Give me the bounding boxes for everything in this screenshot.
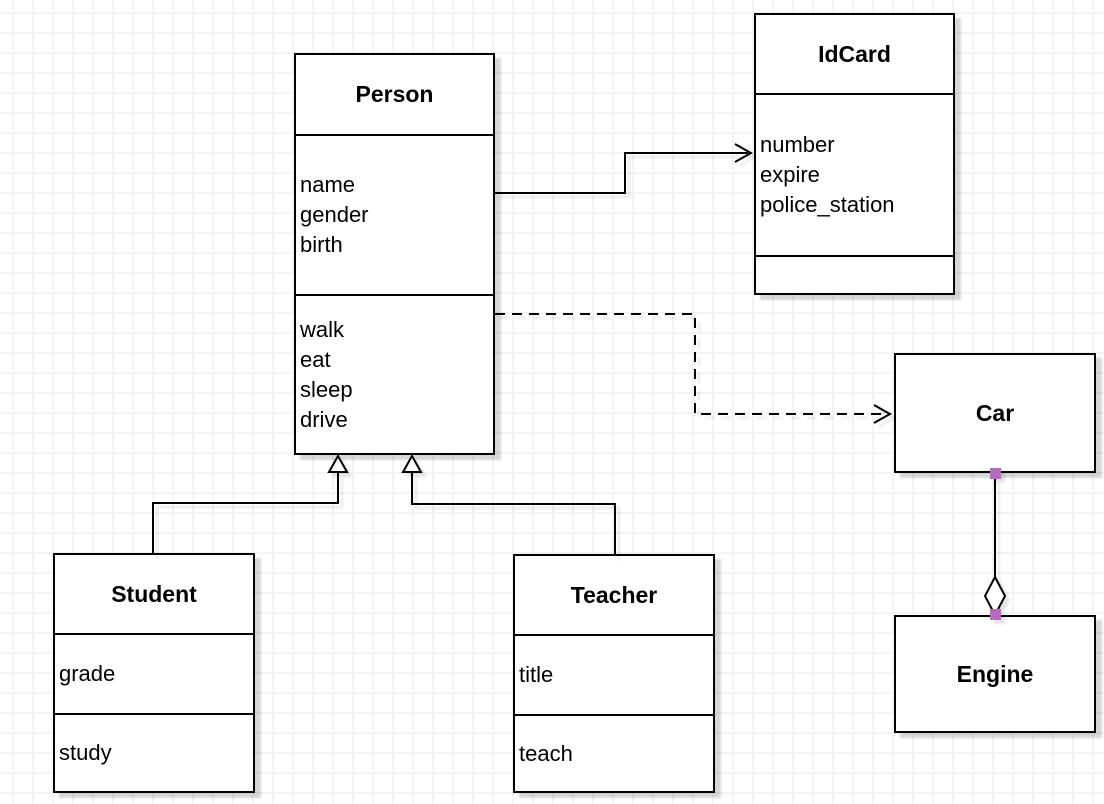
attributes-compartment: grade [55, 635, 253, 715]
association-person-idcard[interactable] [495, 153, 748, 193]
attribute: birth [300, 230, 493, 260]
methods-compartment: teach [515, 716, 713, 791]
attribute: number [760, 130, 953, 160]
class-student[interactable]: Student grade study [53, 553, 255, 793]
open-arrowhead-icon [735, 144, 751, 162]
hollow-triangle-icon [329, 456, 347, 472]
open-arrowhead-icon [874, 405, 890, 423]
methods-compartment: walk eat sleep drive [296, 296, 493, 453]
attributes-compartment: number expire police_station [756, 95, 953, 257]
attribute: grade [59, 659, 253, 689]
method: sleep [300, 375, 493, 405]
methods-compartment: study [55, 715, 253, 791]
method: study [59, 738, 253, 768]
class-title: Engine [896, 617, 1094, 731]
hollow-diamond-icon [985, 577, 1005, 615]
method: teach [519, 739, 713, 769]
hollow-triangle-icon [403, 456, 421, 472]
attribute: title [519, 660, 713, 690]
method: drive [300, 405, 493, 435]
class-engine[interactable]: Engine [894, 615, 1096, 733]
attributes-compartment: name gender birth [296, 136, 493, 296]
method: walk [300, 315, 493, 345]
diagram-canvas: Person name gender birth walk eat sleep … [0, 0, 1104, 804]
class-idcard[interactable]: IdCard number expire police_station [754, 13, 955, 295]
generalization-student-person[interactable] [153, 472, 338, 554]
class-person[interactable]: Person name gender birth walk eat sleep … [294, 53, 495, 455]
class-teacher[interactable]: Teacher title teach [513, 554, 715, 793]
attribute: gender [300, 200, 493, 230]
attributes-compartment: title [515, 636, 713, 716]
attribute: name [300, 170, 493, 200]
method: eat [300, 345, 493, 375]
generalization-teacher-person[interactable] [412, 472, 615, 556]
class-car[interactable]: Car [894, 353, 1096, 473]
attribute: expire [760, 160, 953, 190]
class-title: Student [55, 555, 253, 635]
attribute: police_station [760, 190, 953, 220]
methods-compartment-empty [756, 257, 953, 293]
class-title: Car [896, 355, 1094, 471]
class-title: IdCard [756, 15, 953, 95]
dependency-person-car[interactable] [495, 314, 884, 414]
class-title: Teacher [515, 556, 713, 636]
class-title: Person [296, 55, 493, 136]
